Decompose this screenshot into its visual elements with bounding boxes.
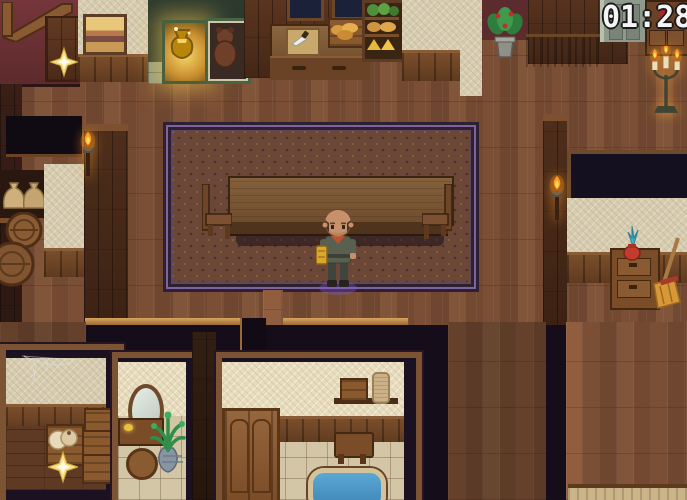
palm-plant: [150, 404, 186, 476]
crate-stack: [82, 454, 112, 484]
vanity-room: [112, 352, 204, 500]
screen-carving: [230, 419, 249, 493]
drawer-handle: [292, 66, 306, 70]
bed-edge: [568, 484, 687, 500]
sparkle-top-left[interactable]: [50, 46, 78, 78]
towel-jar: [372, 372, 390, 404]
right-wall-torch: [545, 174, 569, 224]
screen-carving: [252, 419, 271, 493]
cutting-board-with-knife: [286, 28, 320, 56]
knife-icon: [288, 30, 314, 50]
broom: [648, 236, 684, 310]
bath-side-table-leg: [360, 454, 366, 464]
dining-chair-left[interactable]: [202, 184, 232, 240]
storage-barrels: [0, 212, 46, 288]
storeroom-dark-opening: [6, 116, 82, 157]
drawer-handle: [332, 66, 346, 70]
beige-wall-strip: [460, 0, 482, 96]
creature-figure-icon: [208, 21, 242, 75]
bathtub: [308, 468, 386, 500]
food-shelf-contents-icon: [365, 3, 399, 53]
painting-wainscot: [78, 54, 148, 82]
potted-flower-plant: [486, 6, 524, 60]
player-character[interactable]: [316, 204, 360, 296]
right-room-floor-south: [582, 322, 687, 500]
wooden-box: [340, 378, 368, 402]
candelabra: [647, 46, 685, 118]
golden-artifact-case[interactable]: [162, 20, 208, 84]
kitchen-window-left: [287, 0, 324, 21]
room-divider-wall: [192, 332, 216, 500]
beige-wall: [402, 0, 462, 52]
dark-window: [567, 150, 687, 204]
jugs-icon: [48, 426, 78, 452]
bread-crate: [328, 18, 366, 48]
cobweb-icon: [20, 354, 80, 384]
storeroom-floor-edge: [0, 322, 86, 346]
drawer-handle: [629, 285, 637, 289]
corridor-beam: [566, 322, 582, 500]
bathroom: [216, 352, 422, 500]
bath-side-table-leg: [338, 454, 344, 464]
beige-wainscot: [402, 50, 462, 81]
purple-wall-tapestry: [526, 34, 600, 67]
bread-loaves-icon: [330, 20, 360, 42]
game-viewport: 01:28: [0, 0, 687, 500]
golden-pot-icon: [165, 23, 199, 75]
dining-chair-right[interactable]: [422, 184, 452, 240]
drawer-handle: [629, 263, 637, 267]
south-corridor-floor: [448, 322, 546, 500]
hall-right-wall-beam: [543, 114, 567, 121]
flower-vase: [620, 222, 644, 262]
hall-right-wall: [543, 118, 567, 332]
folding-screen: [222, 408, 280, 500]
timer: 01:28: [602, 2, 684, 34]
gold-trinket: [124, 424, 133, 431]
kitchen-counter-front: [270, 56, 370, 80]
sacks-icon: [0, 170, 44, 212]
storeroom-torch: [76, 130, 100, 180]
sparkle-storeroom[interactable]: [48, 450, 78, 484]
storage-bedroom: [0, 344, 124, 500]
storeroom-wall-base: [44, 248, 86, 277]
nightstand-drawer: [617, 280, 651, 298]
landscape-painting: [83, 14, 127, 55]
